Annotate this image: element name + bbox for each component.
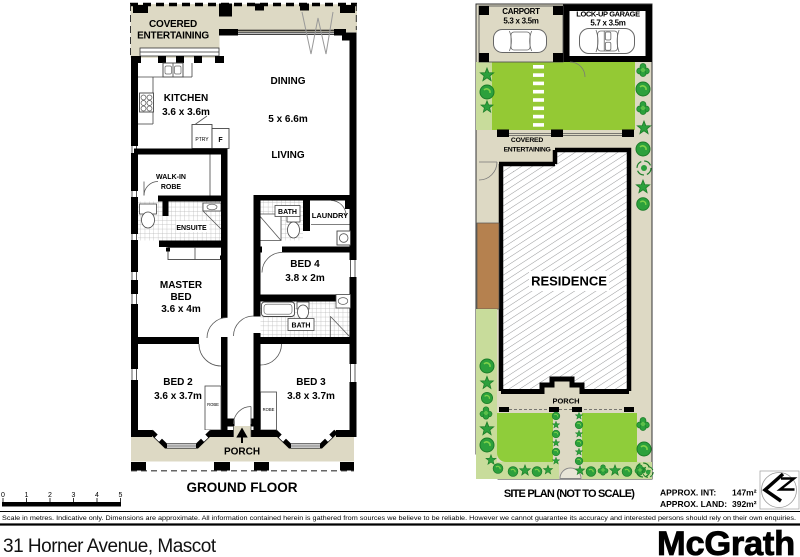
svg-text:RESIDENCE: RESIDENCE [531,274,607,289]
svg-text:2: 2 [48,492,52,499]
svg-text:5 x 6.6m: 5 x 6.6m [268,114,308,125]
svg-text:5.7 x 3.5m: 5.7 x 3.5m [590,19,625,28]
svg-text:5: 5 [119,492,123,499]
svg-text:3.8 x 3.7m: 3.8 x 3.7m [287,391,335,402]
svg-text:McGrath: McGrath [657,525,795,557]
svg-text:392m²: 392m² [732,499,757,509]
svg-text:1: 1 [25,492,29,499]
svg-text:CARPORT: CARPORT [502,7,540,16]
svg-text:BED: BED [170,292,191,303]
svg-text:3: 3 [72,492,76,499]
svg-text:PTRY: PTRY [195,137,209,143]
svg-text:ENTERTAINING: ENTERTAINING [137,31,209,42]
svg-text:Scale in metres. Indicative on: Scale in metres. Indicative only. Dimens… [2,515,796,522]
svg-text:DINING: DINING [271,76,306,87]
svg-text:WALK-IN: WALK-IN [156,174,186,181]
svg-text:APPROX. LAND:: APPROX. LAND: [660,499,727,509]
svg-text:5.3 x 3.5m: 5.3 x 3.5m [503,17,538,26]
svg-text:GROUND FLOOR: GROUND FLOOR [187,480,298,495]
svg-text:BED 3: BED 3 [296,377,326,388]
svg-text:MASTER: MASTER [160,280,203,291]
svg-text:KITCHEN: KITCHEN [164,93,208,104]
svg-text:BATH: BATH [278,209,297,216]
svg-text:147m²: 147m² [732,488,757,498]
svg-text:3.8 x 2m: 3.8 x 2m [285,273,325,284]
svg-text:BED 4: BED 4 [290,259,320,270]
svg-text:3.6 x 3.6m: 3.6 x 3.6m [162,107,210,118]
svg-text:LOCK-UP GARAGE: LOCK-UP GARAGE [576,10,640,19]
svg-text:ROBE: ROBE [161,184,182,191]
svg-text:PORCH: PORCH [552,397,579,406]
svg-text:0: 0 [1,492,5,499]
svg-text:COVERED: COVERED [149,19,197,30]
svg-text:PORCH: PORCH [224,447,260,458]
svg-text:LAUNDRY: LAUNDRY [312,211,348,220]
svg-text:ROBE: ROBE [207,402,219,407]
svg-text:F: F [218,137,223,144]
svg-text:BED 2: BED 2 [163,377,193,388]
svg-text:3.6 x 3.7m: 3.6 x 3.7m [154,391,202,402]
svg-text:ROBE: ROBE [263,407,275,412]
svg-text:LIVING: LIVING [271,150,305,161]
svg-text:COVERED: COVERED [511,137,544,144]
svg-text:SITE PLAN (NOT TO SCALE): SITE PLAN (NOT TO SCALE) [504,488,635,500]
svg-text:31 Horner Avenue, Mascot: 31 Horner Avenue, Mascot [3,536,217,557]
svg-text:3.6 x 4m: 3.6 x 4m [161,304,201,315]
svg-text:BATH: BATH [292,323,311,330]
svg-text:APPROX. INT:: APPROX. INT: [660,488,716,498]
svg-text:4: 4 [95,492,99,499]
svg-text:ENTERTAINING: ENTERTAINING [504,147,551,154]
svg-text:ENSUITE: ENSUITE [176,225,207,232]
